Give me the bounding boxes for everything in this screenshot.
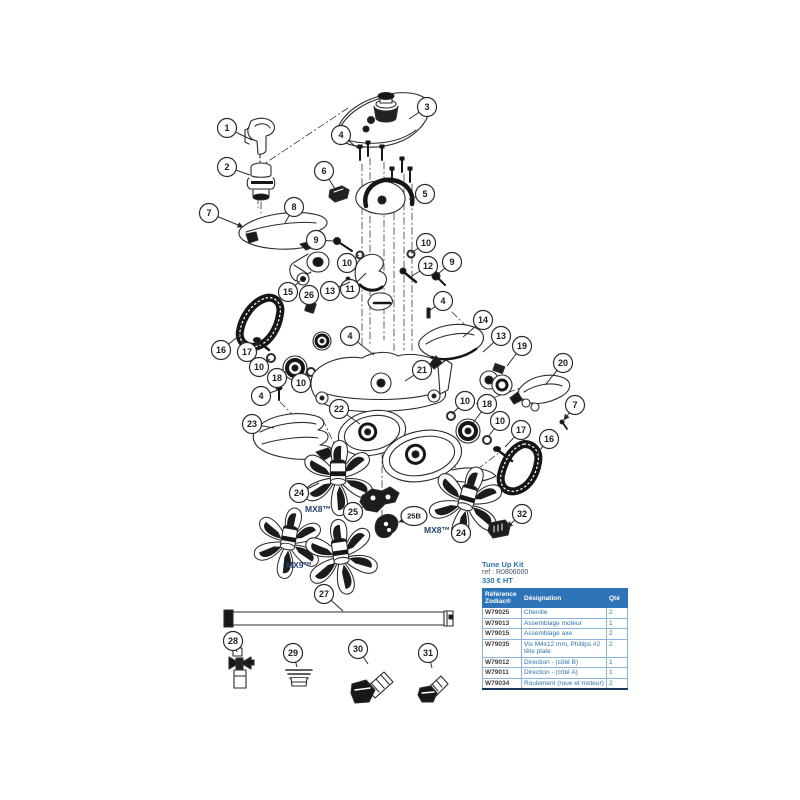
callout-number: 1: [224, 123, 229, 133]
callout-number: 32: [517, 509, 527, 519]
callout-12: 12: [412, 257, 438, 277]
callout-number: 10: [495, 416, 505, 426]
callout-number: 24: [294, 488, 304, 498]
callout-number: 10: [296, 378, 306, 388]
part-6-clip: [329, 186, 349, 202]
designation-cell: Assemblage axe: [522, 629, 607, 640]
callout-number: 17: [242, 347, 252, 357]
exploded-parts-page: 1234657891010111213915264141319201617101…: [0, 0, 800, 800]
callout-6: 6: [315, 162, 336, 190]
part-16-right-belt: [501, 444, 539, 491]
callout-number: 28: [228, 636, 238, 646]
part-27-tube: [224, 610, 453, 627]
callout-16: 16: [536, 430, 559, 456]
qty-cell: 2: [607, 678, 628, 689]
callout-10: 10: [488, 412, 510, 438]
callout-number: 10: [254, 362, 264, 372]
model-label: MX9™: [286, 560, 312, 570]
callout-number: 21: [417, 365, 427, 375]
callout-number: 23: [247, 419, 257, 429]
callout-number: 20: [558, 358, 568, 368]
callout-number: 6: [321, 166, 326, 176]
callout-number: 19: [517, 341, 527, 351]
callout-number: 18: [272, 373, 282, 383]
callout-29: 29: [284, 644, 303, 668]
ref-cell: W79025: [483, 608, 522, 619]
designation-cell: Assemblage moteur: [522, 618, 607, 629]
callout-27: 27: [315, 585, 344, 612]
column-header: Désignation: [522, 589, 607, 608]
callout-13: 13: [483, 327, 511, 353]
kit-price: 330 € HT: [482, 577, 622, 585]
callout-32: 32: [507, 505, 532, 528]
callout-10: 10: [411, 234, 436, 254]
callout-31: 31: [419, 644, 438, 669]
table-row: W79015Assemblage axe2: [483, 629, 628, 640]
part-29-cap: [286, 670, 312, 686]
kit-title: Tune Up Kit: [482, 561, 622, 569]
callout-number: 15: [283, 287, 293, 297]
table-row: W79011Direction - (côté A)1: [483, 668, 628, 679]
callout-number: 4: [258, 391, 263, 401]
ref-cell: W79011: [483, 668, 522, 679]
callout-number: 7: [572, 400, 577, 410]
callout-number: 4: [347, 331, 352, 341]
part-31-elbow: [418, 676, 448, 702]
callout-number: 12: [423, 261, 433, 271]
callout-4: 4: [429, 292, 453, 312]
qty-cell: 1: [607, 657, 628, 668]
column-header: Référence Zodiac®: [483, 589, 522, 608]
callout-number: 10: [460, 396, 470, 406]
part-28-valve: [229, 648, 254, 688]
tune-up-kit-panel: Tune Up Kit ref : R0806000 330 € HT Réfé…: [482, 561, 622, 690]
ref-cell: W79015: [483, 629, 522, 640]
qty-cell: 2: [607, 629, 628, 640]
callout-number: 4: [440, 296, 445, 306]
callout-number: 26: [304, 290, 314, 300]
designation-cell: Direction - (côté A): [522, 668, 607, 679]
callout-number: 30: [353, 644, 363, 654]
callout-10: 10: [452, 392, 475, 415]
callout-number: 27: [319, 589, 329, 599]
parts-table-head: Référence Zodiac®DésignationQté: [483, 589, 628, 608]
table-row: W79034Roulement (roue et moteur)2: [483, 678, 628, 689]
exploded-diagram: 1234657891010111213915264141319201617101…: [0, 0, 800, 800]
part-11-bracket: [355, 254, 392, 310]
callout-7: 7: [564, 396, 585, 421]
callout-number: 14: [478, 315, 488, 325]
designation-cell: Direction - (côté B): [522, 657, 607, 668]
part-32-block: [488, 520, 510, 538]
table-row: W79013Assemblage moteur1: [483, 618, 628, 629]
callout-10: 10: [292, 374, 311, 393]
callout-4: 4: [252, 387, 279, 406]
part-25b-clamp: [375, 514, 398, 537]
callout-15: 15: [279, 281, 301, 302]
qty-cell: 1: [607, 618, 628, 629]
callout-number: 9: [449, 257, 454, 267]
callout-number: 9: [313, 235, 318, 245]
callout-number: 25B: [407, 512, 421, 521]
callout-number: 17: [516, 425, 526, 435]
qty-cell: 1: [607, 668, 628, 679]
table-row: W79025Chenille2: [483, 608, 628, 619]
callout-4: 4: [341, 327, 375, 356]
ref-cell: W79013: [483, 618, 522, 629]
ref-cell: W79012: [483, 657, 522, 668]
parts-table-body: W79025Chenille2W79013Assemblage moteur1W…: [483, 608, 628, 690]
part-30-elbow: [351, 672, 393, 703]
callout-number: 16: [216, 345, 226, 355]
callout-number: 22: [334, 404, 344, 414]
callout-26: 26: [300, 286, 319, 307]
table-row: W79012Direction - (côté B)1: [483, 657, 628, 668]
part-23-bumper: [253, 414, 334, 460]
designation-cell: Chenille: [522, 608, 607, 619]
callout-number: 13: [325, 286, 335, 296]
table-row: W79035Vis M4x12 mm, Phillips #2 tête pla…: [483, 639, 628, 657]
callout-number: 13: [496, 331, 506, 341]
callout-9: 9: [438, 253, 462, 275]
construction-lines: [258, 108, 532, 548]
part-2-valve: [247, 163, 275, 213]
ref-cell: W79034: [483, 678, 522, 689]
model-label: MX8™: [424, 525, 450, 535]
callout-9: 9: [307, 231, 335, 250]
callout-7: 7: [200, 204, 244, 228]
column-header: Qté: [607, 589, 628, 608]
callout-30: 30: [349, 640, 369, 665]
callout-number: 10: [421, 238, 431, 248]
callout-number: 16: [544, 434, 554, 444]
ref-cell: W79035: [483, 639, 522, 657]
callout-number: 4: [338, 130, 343, 140]
callout-16: 16: [212, 335, 241, 360]
parts-table: Référence Zodiac®DésignationQté W79025Ch…: [482, 588, 628, 690]
callout-number: 18: [482, 399, 492, 409]
designation-cell: Vis M4x12 mm, Phillips #2 tête plate: [522, 639, 607, 657]
callout-25B: 25B: [399, 507, 427, 526]
designation-cell: Roulement (roue et moteur): [522, 678, 607, 689]
callout-number: 3: [424, 102, 429, 112]
part-15-motor: [290, 252, 329, 285]
callout-number: 31: [423, 648, 433, 658]
qty-cell: 2: [607, 639, 628, 657]
callout-number: 29: [288, 648, 298, 658]
part-1-clamp: [245, 118, 274, 164]
callout-number: 7: [206, 208, 211, 218]
callout-2: 2: [218, 158, 251, 177]
callout-number: 24: [456, 528, 466, 538]
callout-number: 2: [224, 162, 229, 172]
model-label: MX8™: [305, 504, 331, 514]
callout-number: 11: [345, 284, 355, 294]
callout-number: 10: [342, 258, 352, 268]
callout-number: 5: [422, 189, 427, 199]
qty-cell: 2: [607, 608, 628, 619]
callout-number: 8: [291, 202, 296, 212]
callout-19: 19: [507, 337, 532, 367]
part-19-motor: [480, 363, 512, 395]
callout-number: 25: [348, 507, 358, 517]
